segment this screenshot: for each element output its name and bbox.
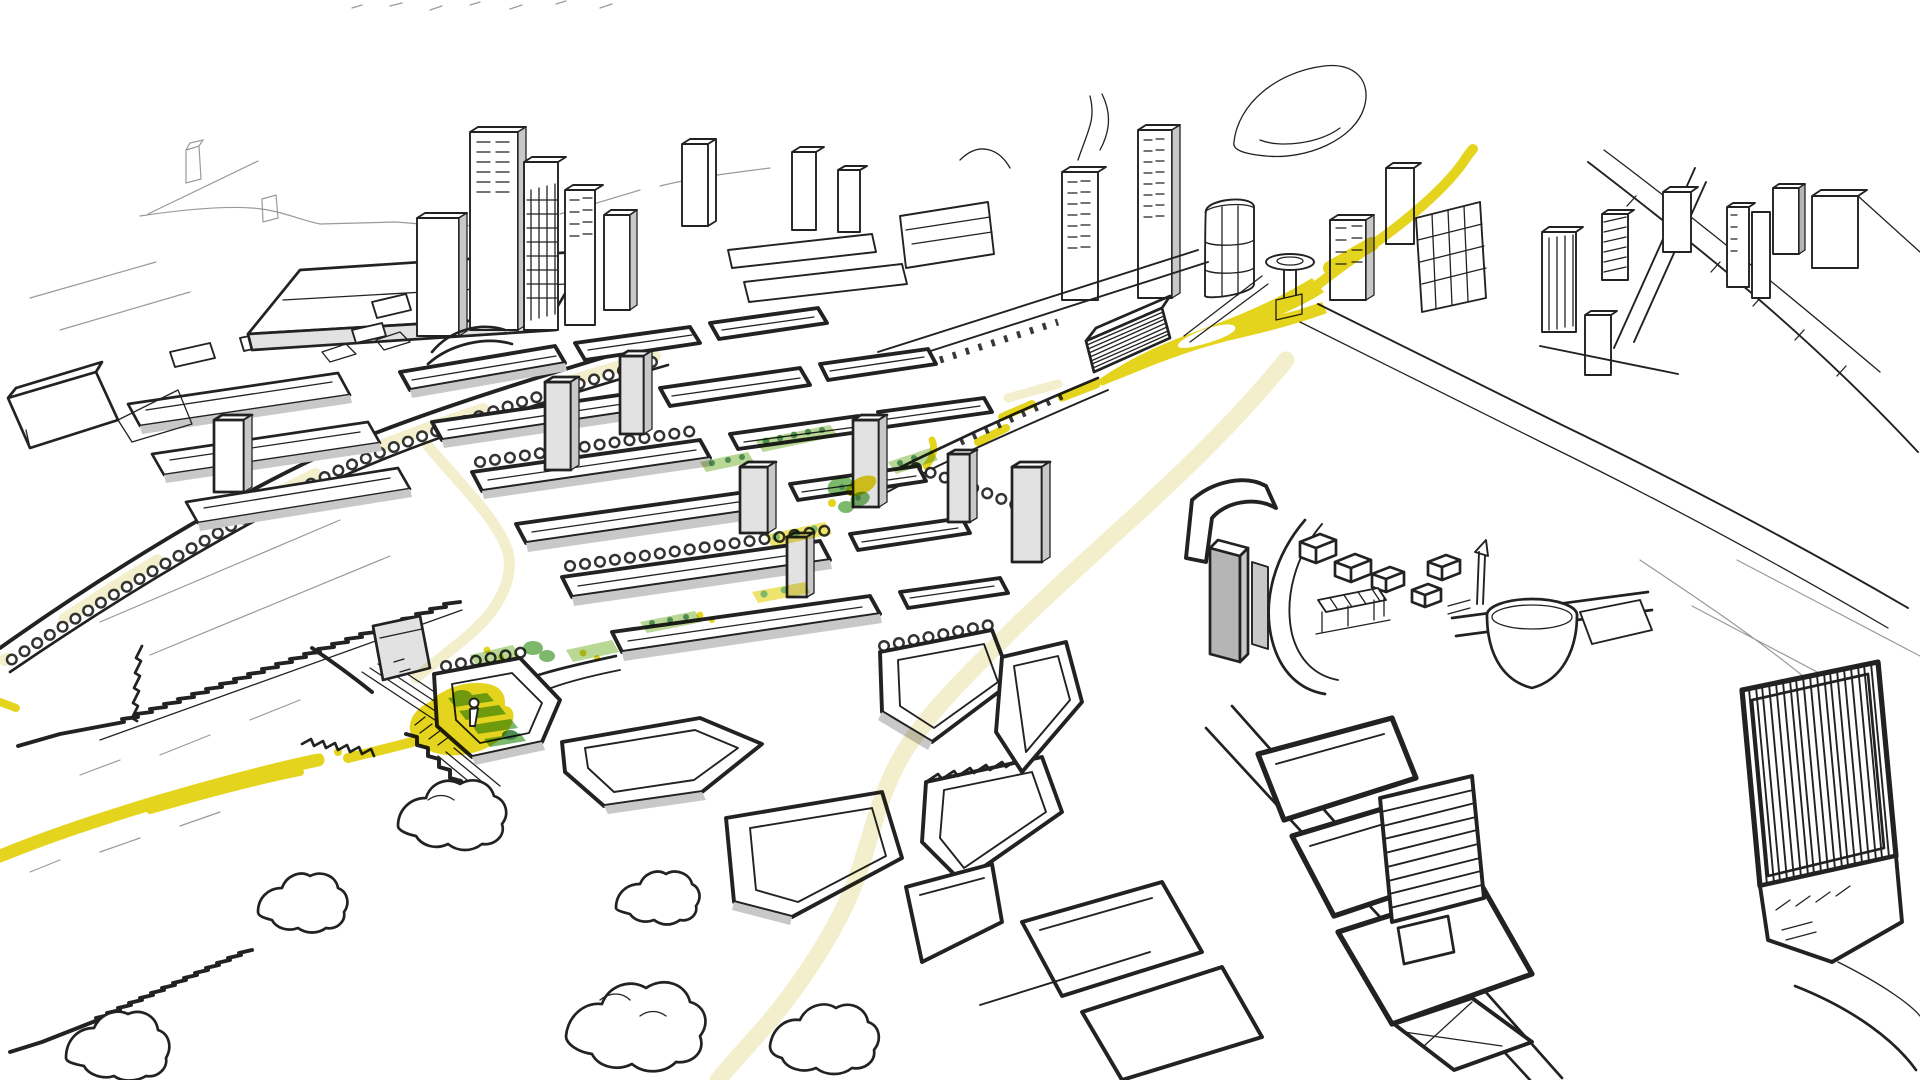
masterplan-sketch-canvas: Hand-drawn aerial masterplan sketch with… — [0, 0, 1920, 1080]
small-cube — [1428, 555, 1460, 580]
striped-slab — [1380, 776, 1484, 922]
cylinder-tower — [1205, 199, 1254, 297]
grey-slab-tower — [1210, 548, 1240, 662]
small-cube — [1412, 584, 1441, 607]
sketch-page: Hand-drawn aerial masterplan sketch with… — [0, 0, 1920, 1080]
